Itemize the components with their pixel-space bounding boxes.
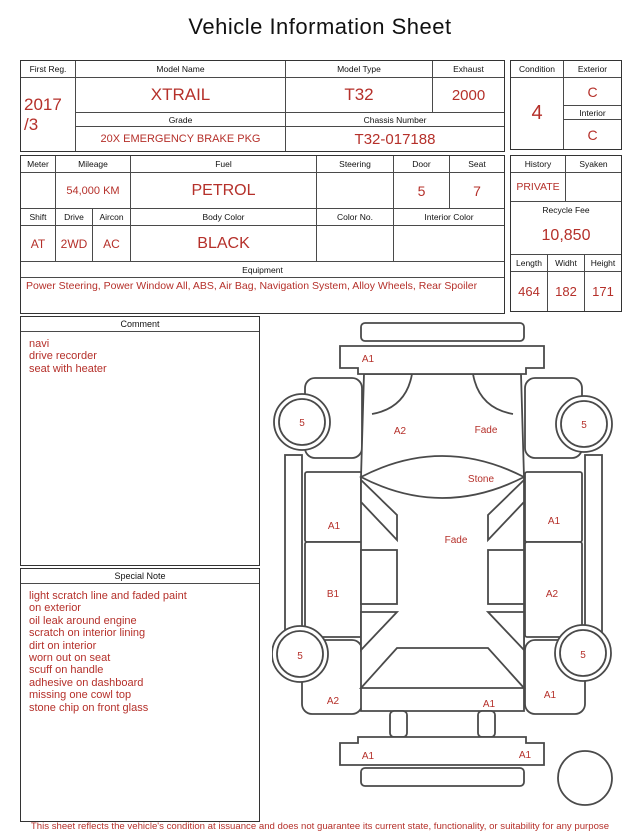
aircon-label: Aircon: [93, 209, 131, 226]
chassis-number-value: T32-017188: [286, 127, 504, 151]
disclaimer-text: This sheet reflects the vehicle's condit…: [0, 821, 640, 832]
marker-rear-fender-right: A1: [544, 690, 557, 701]
length-label: Length: [511, 255, 548, 272]
model-name-value: XTRAIL: [76, 78, 286, 113]
history-value: PRIVATE: [511, 173, 566, 201]
special-note-line: missing one cowl top: [29, 689, 251, 701]
marker-trunk: A1: [483, 699, 496, 710]
color-no-value: [317, 226, 394, 261]
recycle-fee-value: 10,850: [511, 217, 621, 254]
comment-line: drive recorder: [29, 350, 251, 362]
special-note-line: light scratch line and faded paint: [29, 590, 251, 602]
front-door-right: [525, 472, 582, 542]
exterior-label: Exterior: [564, 61, 621, 78]
fuel-label: Fuel: [131, 156, 317, 173]
chassis-number-label: Chassis Number: [286, 113, 504, 127]
color-no-label: Color No.: [317, 209, 394, 226]
steering-value: [317, 173, 394, 208]
door-value: 5: [394, 173, 450, 208]
marker-rear-fender-left: A2: [327, 696, 340, 707]
car-damage-diagram: A1 5 5 A2 Fade Stone A1 A1 Fade B1 A2 5 …: [272, 312, 632, 812]
condition-label: Condition: [511, 61, 564, 78]
meter-label: Meter: [21, 156, 56, 173]
mileage-label: Mileage: [56, 156, 131, 173]
tail-light-right: [478, 711, 495, 737]
special-note-line: dirt on interior: [29, 640, 251, 652]
marker-rear-wheel-left: 5: [297, 651, 303, 662]
special-note-line: worn out on seat: [29, 652, 251, 664]
marker-rear-door-right: A2: [546, 589, 559, 600]
spare-tire: [558, 751, 612, 805]
aircon-value: AC: [93, 226, 131, 261]
special-note-text: light scratch line and faded paint on ex…: [21, 584, 259, 720]
marker-front-door-left: A1: [328, 521, 341, 532]
condition-value: 4: [511, 78, 564, 149]
front-grille-strip: [361, 323, 524, 341]
marker-windshield-stone: Stone: [468, 474, 495, 485]
comment-line: navi: [29, 338, 251, 350]
history-fee-table: History Syaken PRIVATE Recycle Fee 10,85…: [510, 155, 622, 312]
syaken-label: Syaken: [566, 156, 621, 173]
first-reg-label: First Reg.: [21, 61, 76, 78]
width-label: Widht: [548, 255, 585, 272]
marker-hood-fade: Fade: [475, 425, 498, 436]
comment-label: Comment: [21, 317, 259, 332]
body-color-value: BLACK: [131, 226, 317, 261]
mileage-value: 54,000 KM: [56, 173, 131, 208]
special-note-box: Special Note light scratch line and fade…: [20, 568, 260, 822]
special-note-line: scratch on interior lining: [29, 627, 251, 639]
marker-hood: A2: [394, 426, 407, 437]
marker-front-wheel-left: 5: [299, 418, 305, 429]
special-note-line: on exterior: [29, 602, 251, 614]
exterior-value: C: [564, 78, 621, 106]
interior-label: Interior: [564, 106, 621, 120]
interior-value: C: [564, 120, 621, 149]
length-value: 464: [511, 272, 548, 311]
fuel-value: PETROL: [131, 173, 317, 208]
rear-window-right: [488, 550, 524, 604]
recycle-fee-label: Recycle Fee: [511, 202, 621, 217]
exhaust-label: Exhaust: [433, 61, 504, 78]
equipment-value: Power Steering, Power Window All, ABS, A…: [21, 278, 504, 313]
shift-label: Shift: [21, 209, 56, 226]
page-title: Vehicle Information Sheet: [0, 14, 640, 40]
model-type-value: T32: [286, 78, 433, 113]
history-label: History: [511, 156, 566, 173]
vehicle-identity-table: First Reg. Model Name Model Type Exhaust…: [20, 60, 505, 152]
vehicle-spec-table: Meter Mileage Fuel Steering Door Seat 54…: [20, 155, 505, 314]
exhaust-value: 2000: [433, 78, 504, 113]
tail-light-left: [390, 711, 407, 737]
body-color-label: Body Color: [131, 209, 317, 226]
model-name-label: Model Name: [76, 61, 286, 78]
grade-label: Grade: [76, 113, 286, 127]
seat-label: Seat: [450, 156, 504, 173]
seat-value: 7: [450, 173, 504, 208]
special-note-line: adhesive on dashboard: [29, 677, 251, 689]
syaken-value: [566, 173, 621, 201]
equipment-label: Equipment: [21, 262, 504, 277]
sill-left: [285, 455, 302, 637]
steering-label: Steering: [317, 156, 394, 173]
rear-lower-strip: [361, 768, 524, 786]
width-value: 182: [548, 272, 585, 311]
model-type-label: Model Type: [286, 61, 433, 78]
sill-right: [585, 455, 602, 637]
condition-table: Condition Exterior 4 C Interior C: [510, 60, 622, 150]
special-note-line: oil leak around engine: [29, 615, 251, 627]
shift-value: AT: [21, 226, 56, 261]
marker-rear-door-left: B1: [327, 589, 340, 600]
marker-roof-fade: Fade: [445, 535, 468, 546]
comment-box: Comment navi drive recorder seat with he…: [20, 316, 260, 566]
height-value: 171: [585, 272, 621, 311]
vehicle-information-sheet: Vehicle Information Sheet First Reg. Mod…: [0, 0, 640, 835]
grade-value: 20X EMERGENCY BRAKE PKG: [76, 127, 286, 151]
rear-window-left: [361, 550, 397, 604]
door-label: Door: [394, 156, 450, 173]
marker-rear-bumper-right: A1: [519, 750, 532, 761]
special-note-line: stone chip on front glass: [29, 702, 251, 714]
height-label: Height: [585, 255, 621, 272]
marker-rear-bumper-left: A1: [362, 751, 375, 762]
special-note-line: scuff on handle: [29, 664, 251, 676]
comment-text: navi drive recorder seat with heater: [21, 332, 259, 381]
marker-front-wheel-right: 5: [581, 420, 587, 431]
marker-front-door-right: A1: [548, 516, 561, 527]
drive-value: 2WD: [56, 226, 93, 261]
comment-line: seat with heater: [29, 363, 251, 375]
drive-label: Drive: [56, 209, 93, 226]
marker-front-bumper: A1: [362, 354, 375, 365]
special-note-label: Special Note: [21, 569, 259, 584]
meter-value: [21, 173, 56, 208]
marker-rear-wheel-right: 5: [580, 650, 586, 661]
interior-color-label: Interior Color: [394, 209, 504, 226]
interior-color-value: [394, 226, 504, 261]
first-reg-value: 2017 /3: [21, 78, 76, 151]
